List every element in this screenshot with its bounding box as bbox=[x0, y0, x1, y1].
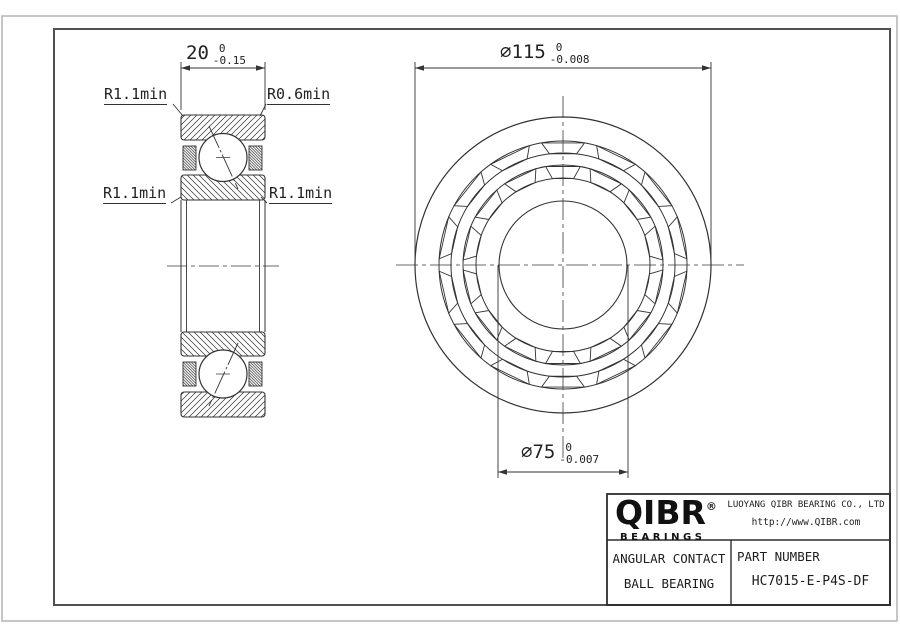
dimension-outer-diameter: ⌀115 0 -0.008 bbox=[500, 43, 590, 66]
product-type-line1: ANGULAR CONTACT bbox=[607, 551, 731, 566]
logo-wordmark: QIBR bbox=[615, 493, 706, 532]
cage-pocket-segment bbox=[597, 146, 636, 171]
drawing-sheet: 20 0 -0.15 ⌀115 0 -0.008 ⌀75 0 -0.007 R1… bbox=[0, 0, 900, 636]
dimension-width-tol-lower: -0.15 bbox=[213, 55, 246, 67]
dimension-bore-diameter: ⌀75 0 -0.007 bbox=[521, 443, 599, 466]
company-logo: QIBR® bbox=[615, 496, 717, 529]
cage-bottom-left bbox=[183, 362, 196, 386]
section-view bbox=[167, 115, 279, 417]
company-name: LUOYANG QIBR BEARING CO., LTD bbox=[726, 500, 886, 510]
part-number-value: HC7015-E-P4S-DF bbox=[731, 574, 890, 589]
dimension-od-value: ⌀115 bbox=[500, 43, 546, 62]
dimension-bore-value: ⌀75 bbox=[521, 443, 555, 462]
radius-label-top-left: R1.1min bbox=[104, 87, 167, 105]
cage-pocket-segment bbox=[597, 359, 636, 384]
dimension-width-value: 20 bbox=[186, 44, 209, 63]
cage-top-right bbox=[249, 146, 262, 170]
part-number-label: PART NUMBER bbox=[737, 549, 820, 564]
dimension-width: 20 0 -0.15 bbox=[186, 44, 246, 67]
front-view bbox=[396, 96, 744, 458]
sheet-frame bbox=[2, 16, 897, 621]
dimension-od-tol-lower: -0.008 bbox=[550, 54, 590, 66]
dimension-bore-tol-lower: -0.007 bbox=[559, 454, 599, 466]
company-website: http://www.QIBR.com bbox=[726, 517, 886, 528]
logo-tagline: BEARINGS bbox=[620, 532, 705, 543]
cage-pocket-segment bbox=[475, 190, 502, 220]
cage-top-left bbox=[183, 146, 196, 170]
radius-label-mid-left: R1.1min bbox=[103, 186, 166, 204]
cage-pocket-segment bbox=[491, 146, 530, 171]
radius-label-mid-right: R1.1min bbox=[269, 186, 332, 204]
radius-label-top-right: R0.6min bbox=[267, 87, 330, 105]
product-type-line2: BALL BEARING bbox=[607, 576, 731, 591]
cage-bottom-right bbox=[249, 362, 262, 386]
registered-trademark-symbol: ® bbox=[706, 500, 717, 513]
cage-pocket-segment bbox=[624, 190, 651, 220]
cage-pocket-segment bbox=[491, 359, 530, 384]
